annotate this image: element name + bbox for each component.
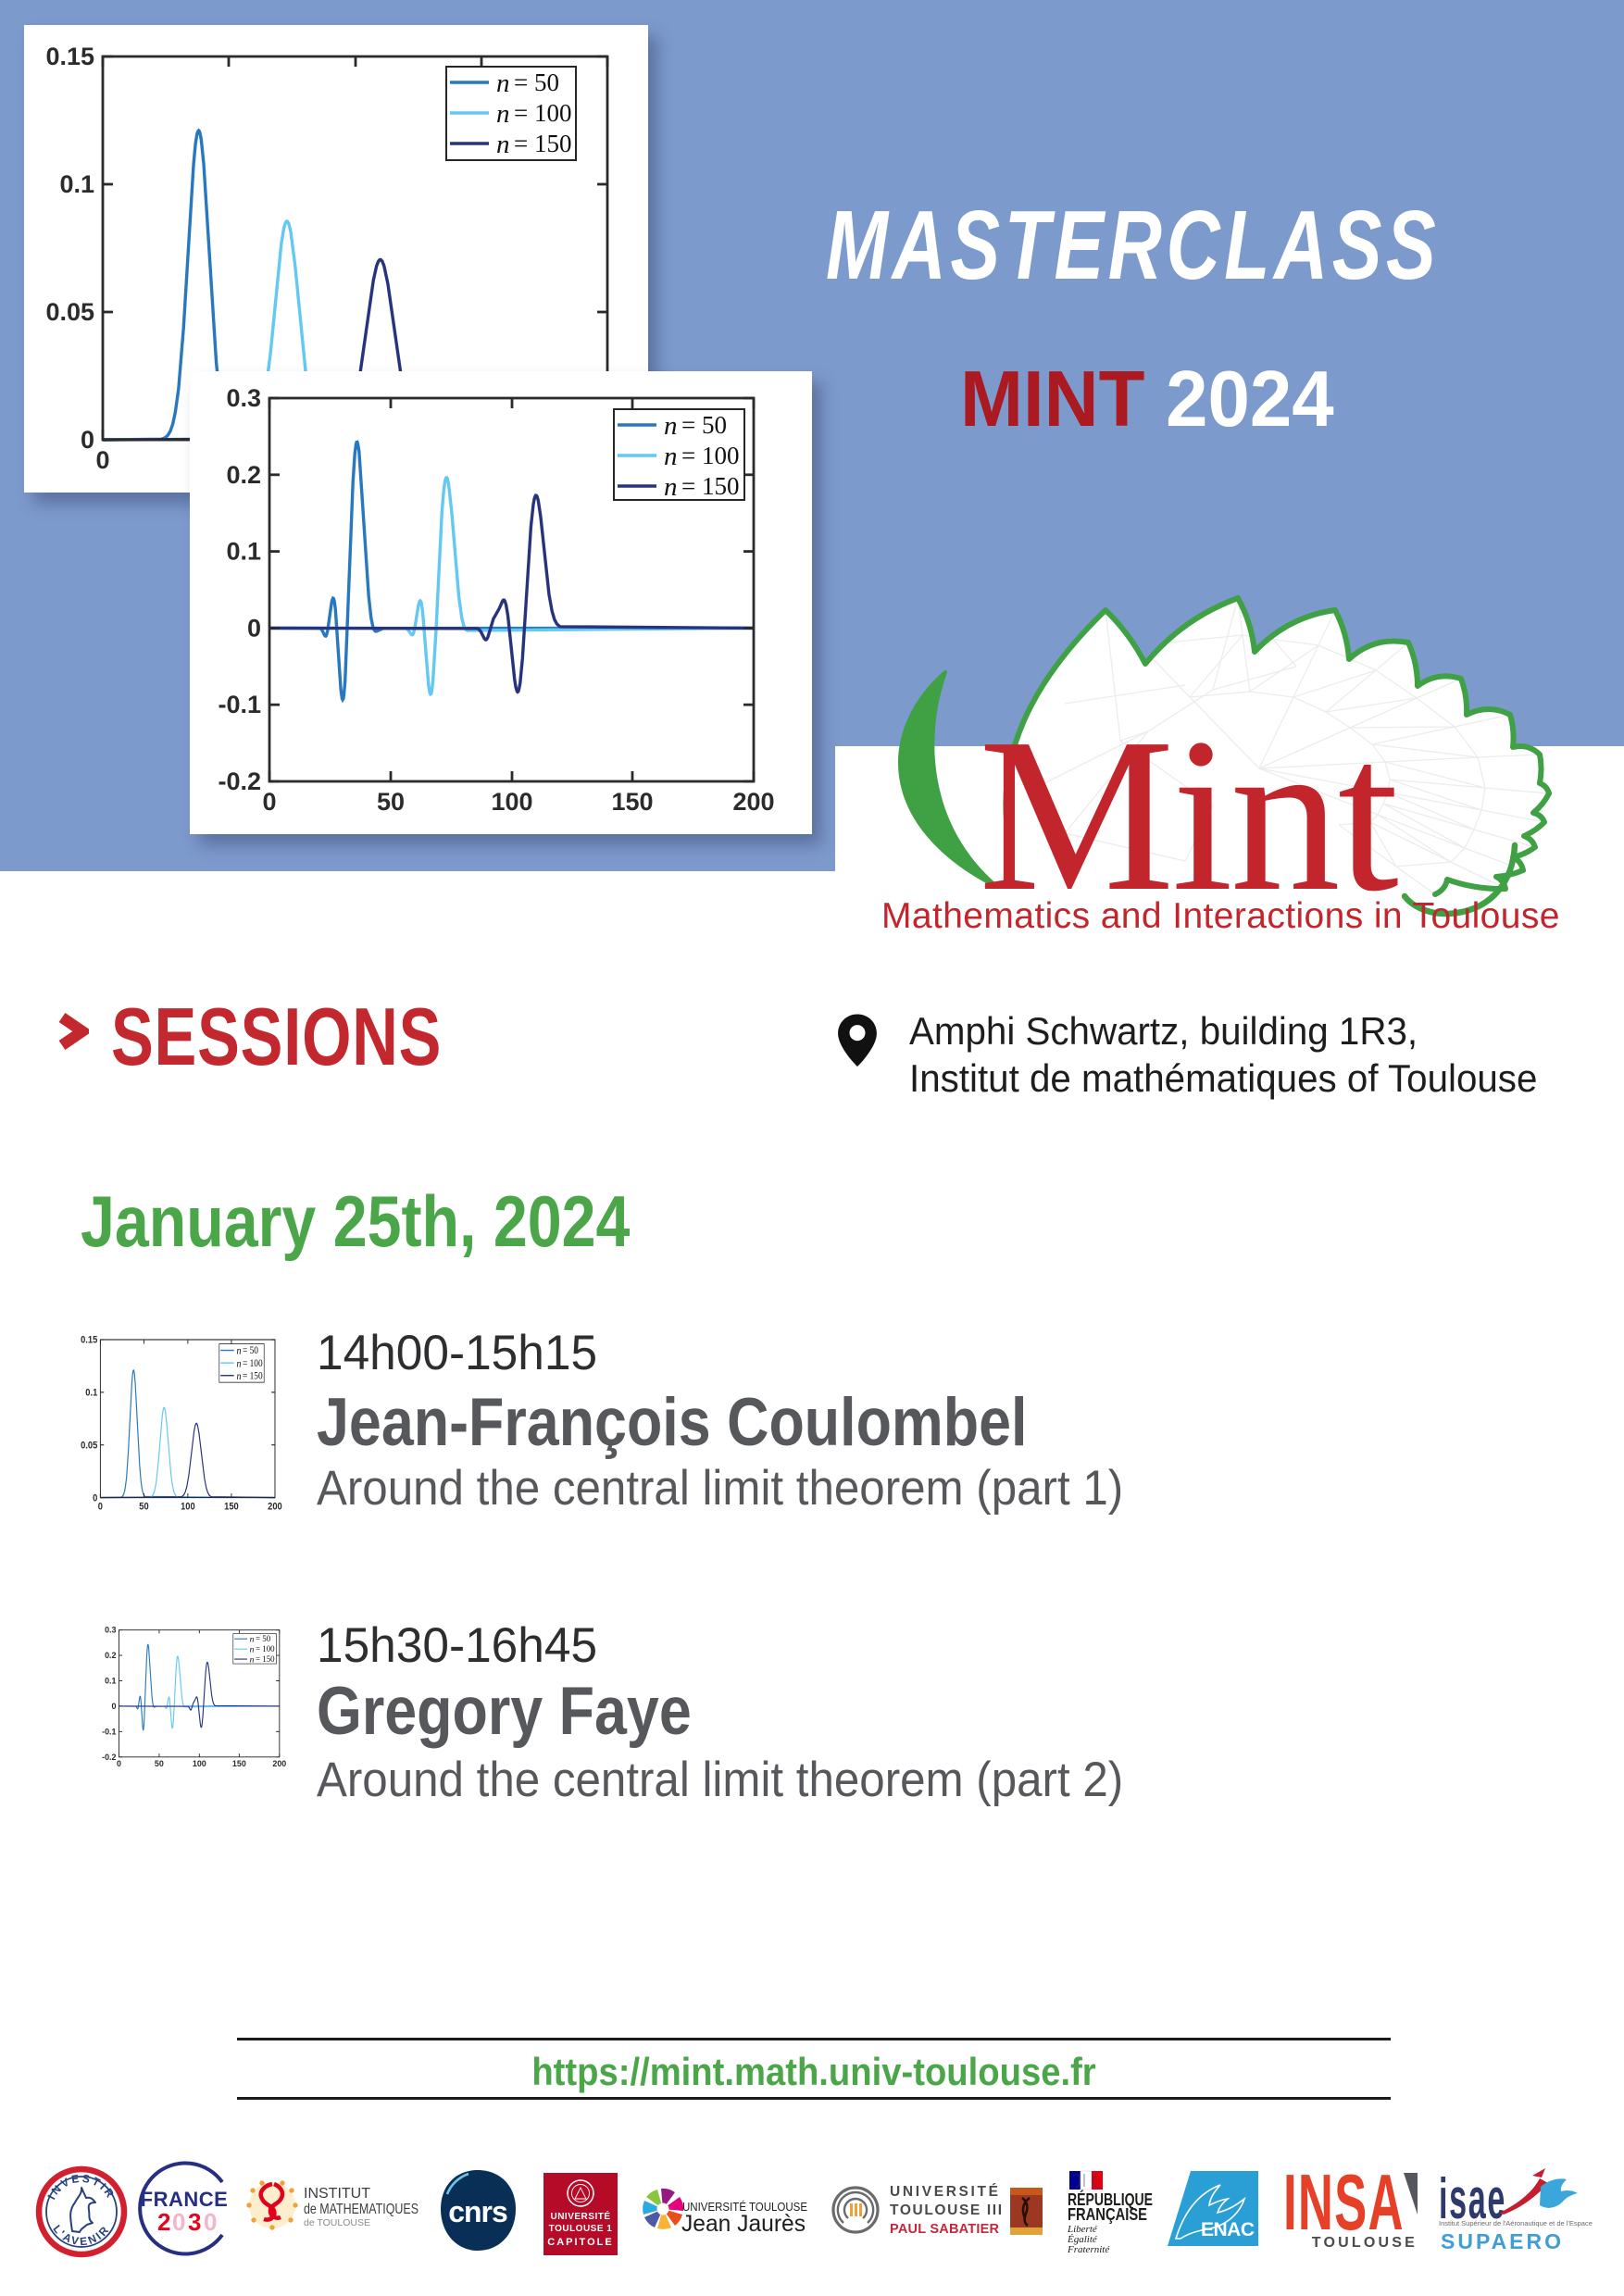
svg-text:UNIVERSITÉ: UNIVERSITÉ: [890, 2184, 998, 2200]
svg-text:0: 0: [172, 2208, 185, 2236]
svg-text:CAPITOLE: CAPITOLE: [547, 2237, 613, 2248]
svg-text:UNIVERSITÉ: UNIVERSITÉ: [550, 2210, 610, 2222]
svg-text:INSTITUT: INSTITUT: [304, 2186, 370, 2202]
svg-text:TOULOUSE III: TOULOUSE III: [890, 2202, 1002, 2218]
svg-text:SUPAERO: SUPAERO: [1441, 2229, 1561, 2253]
svg-text:2: 2: [157, 2208, 170, 2236]
svg-text:de TOULOUSE: de TOULOUSE: [304, 2217, 370, 2228]
svg-text:FRANÇAISE: FRANÇAISE: [1068, 2204, 1147, 2224]
svg-text:0: 0: [204, 2208, 217, 2236]
svg-text:ENAC: ENAC: [1201, 2219, 1255, 2240]
svg-text:TOULOUSE 1: TOULOUSE 1: [549, 2224, 613, 2234]
svg-text:Fraternité: Fraternité: [1067, 2244, 1110, 2255]
svg-text:Institut Supérieur de l'Aérona: Institut Supérieur de l'Aéronautique et …: [1439, 2219, 1593, 2227]
svg-text:INSA: INSA: [1283, 2158, 1405, 2246]
svg-text:3: 3: [188, 2208, 201, 2236]
svg-text:Jean Jaurès: Jean Jaurès: [681, 2211, 806, 2237]
svg-text:PAUL SABATIER: PAUL SABATIER: [890, 2222, 1000, 2237]
svg-text:cnrs: cnrs: [448, 2195, 507, 2228]
svg-text:TOULOUSE: TOULOUSE: [1312, 2235, 1418, 2251]
svg-text:de MATHEMATIQUES: de MATHEMATIQUES: [304, 2202, 418, 2217]
